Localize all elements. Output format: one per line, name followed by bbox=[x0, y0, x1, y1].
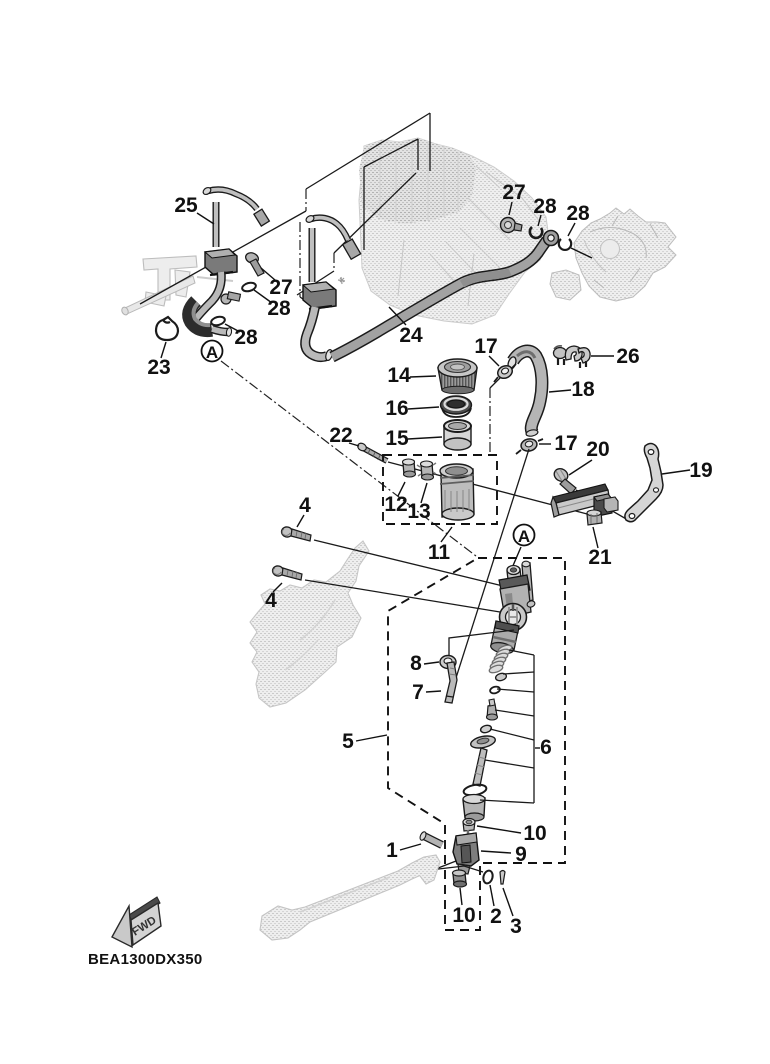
svg-text:6: 6 bbox=[540, 736, 552, 759]
svg-text:28: 28 bbox=[267, 297, 291, 320]
svg-text:9: 9 bbox=[515, 843, 527, 866]
svg-text:27: 27 bbox=[502, 181, 525, 204]
svg-text:16: 16 bbox=[385, 397, 408, 420]
svg-text:28: 28 bbox=[533, 195, 557, 218]
svg-text:26: 26 bbox=[616, 345, 639, 368]
svg-text:A: A bbox=[518, 527, 530, 546]
svg-text:28: 28 bbox=[566, 202, 590, 225]
svg-text:19: 19 bbox=[689, 459, 712, 482]
svg-text:18: 18 bbox=[571, 378, 595, 401]
svg-text:15: 15 bbox=[385, 427, 409, 450]
svg-text:8: 8 bbox=[410, 652, 422, 675]
svg-text:27: 27 bbox=[269, 276, 292, 299]
svg-text:A: A bbox=[206, 343, 218, 362]
svg-text:13: 13 bbox=[407, 500, 430, 523]
svg-text:5: 5 bbox=[342, 730, 354, 753]
svg-text:BEA1300DX350: BEA1300DX350 bbox=[88, 951, 203, 968]
svg-text:12: 12 bbox=[384, 493, 407, 516]
svg-text:7: 7 bbox=[412, 681, 424, 704]
svg-text:10: 10 bbox=[523, 822, 546, 845]
svg-text:10: 10 bbox=[452, 904, 475, 927]
svg-text:14: 14 bbox=[387, 364, 411, 387]
svg-text:4: 4 bbox=[265, 589, 277, 612]
svg-text:24: 24 bbox=[399, 324, 423, 347]
svg-text:3: 3 bbox=[510, 915, 522, 938]
svg-text:17: 17 bbox=[474, 335, 497, 358]
svg-text:4: 4 bbox=[299, 494, 311, 517]
svg-text:17: 17 bbox=[554, 432, 577, 455]
svg-text:2: 2 bbox=[490, 905, 502, 928]
svg-text:28: 28 bbox=[234, 326, 258, 349]
svg-text:23: 23 bbox=[147, 356, 170, 379]
svg-text:1: 1 bbox=[386, 839, 398, 862]
svg-text:11: 11 bbox=[428, 541, 451, 564]
svg-text:20: 20 bbox=[586, 438, 609, 461]
svg-text:21: 21 bbox=[588, 546, 612, 569]
svg-text:25: 25 bbox=[174, 194, 198, 217]
